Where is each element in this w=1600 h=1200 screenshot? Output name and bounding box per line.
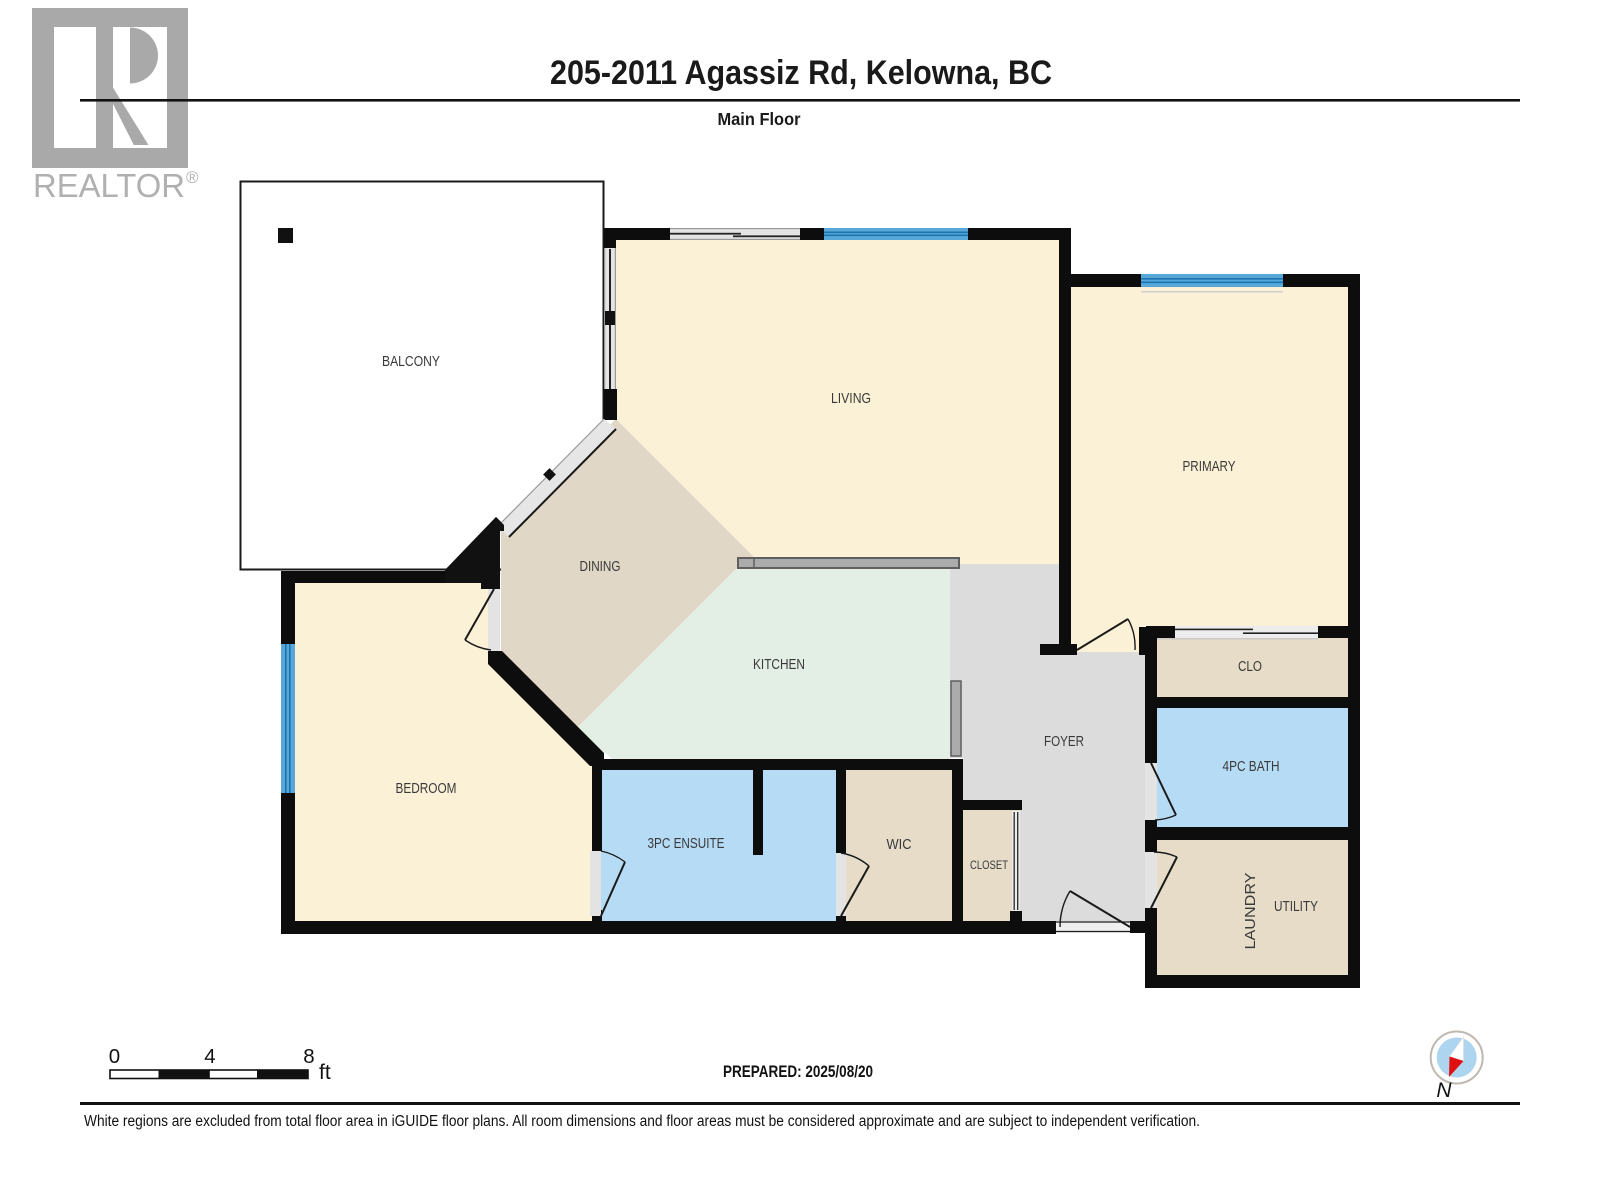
- svg-text:4: 4: [204, 1045, 215, 1068]
- svg-text:PREPARED: 2025/08/20: PREPARED: 2025/08/20: [723, 1062, 873, 1081]
- svg-text:WIC: WIC: [887, 837, 912, 853]
- svg-text:White regions are excluded fro: White regions are excluded from total fl…: [84, 1113, 1200, 1130]
- svg-text:FOYER: FOYER: [1044, 734, 1084, 750]
- svg-text:BEDROOM: BEDROOM: [396, 781, 457, 797]
- svg-text:®: ®: [186, 168, 199, 187]
- svg-text:LIVING: LIVING: [831, 391, 871, 407]
- svg-text:CLO: CLO: [1238, 659, 1262, 675]
- svg-text:PRIMARY: PRIMARY: [1183, 459, 1236, 475]
- svg-text:8: 8: [303, 1045, 314, 1068]
- svg-text:KITCHEN: KITCHEN: [753, 657, 805, 673]
- svg-text:Main Floor: Main Floor: [718, 109, 801, 129]
- svg-text:DINING: DINING: [580, 559, 621, 575]
- svg-text:BALCONY: BALCONY: [382, 354, 440, 370]
- svg-text:REALTOR: REALTOR: [33, 167, 185, 204]
- svg-text:205-2011 Agassiz Rd, Kelowna,: 205-2011 Agassiz Rd, Kelowna, BC: [550, 54, 1052, 92]
- svg-text:CLOSET: CLOSET: [970, 860, 1008, 872]
- svg-text:4PC BATH: 4PC BATH: [1223, 759, 1280, 775]
- svg-text:LAUNDRY: LAUNDRY: [1243, 872, 1259, 949]
- svg-text:ft: ft: [319, 1061, 331, 1084]
- svg-text:N: N: [1436, 1079, 1452, 1102]
- svg-text:3PC ENSUITE: 3PC ENSUITE: [648, 836, 725, 852]
- svg-text:UTILITY: UTILITY: [1274, 899, 1318, 915]
- svg-text:0: 0: [109, 1045, 120, 1068]
